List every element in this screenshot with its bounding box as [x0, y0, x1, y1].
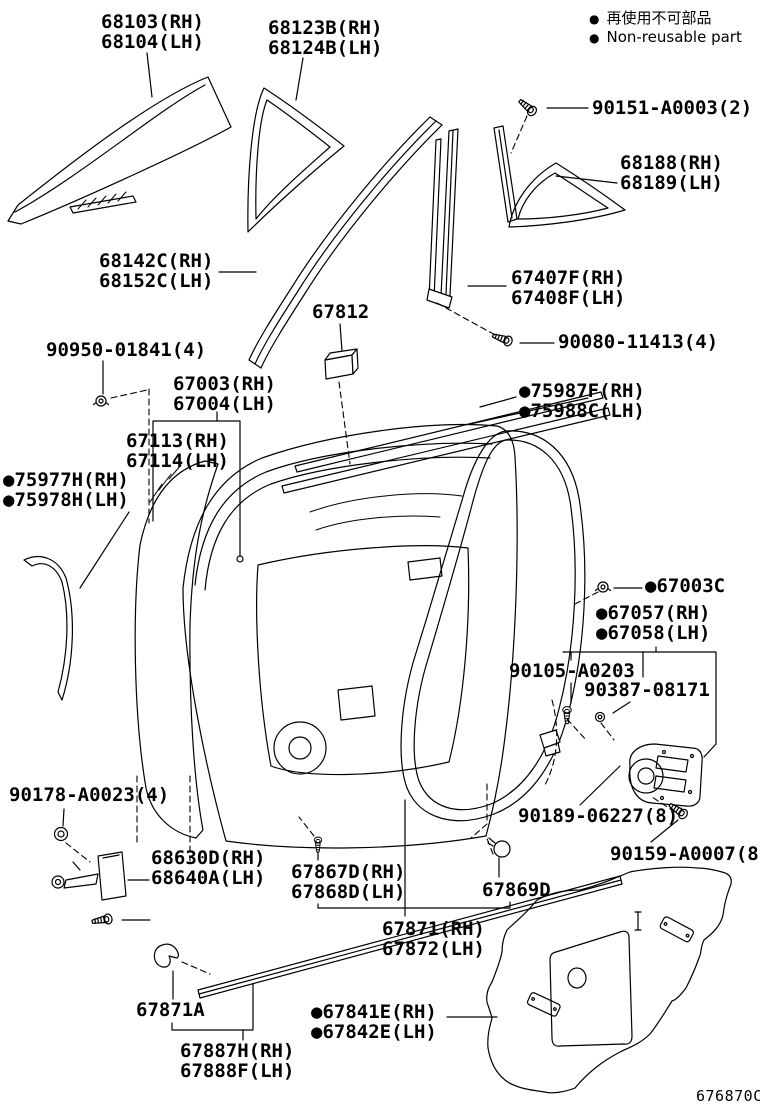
- part-label-68123B: 68123B(RH)68124B(LH): [268, 18, 382, 58]
- part-label-67867D: 67867D(RH)67868D(LH): [291, 862, 405, 902]
- legend-text-jp: 再使用不可部品: [606, 9, 711, 28]
- part-label-68188: 68188(RH)68189(LH): [620, 153, 723, 193]
- part-label-75987F: ●75987F(RH)●75988C(LH): [519, 381, 645, 421]
- part-label-67869D: 67869D: [482, 880, 551, 900]
- non-reusable-bullet-icon: ●: [589, 13, 599, 25]
- glass-run-drawing: [249, 117, 442, 368]
- part-label-90950: 90950-01841(4): [46, 340, 206, 360]
- part-label-67003: 67003(RH)67004(LH): [173, 374, 276, 414]
- part-label-75977H: ●75977H(RH)●75978H(LH): [3, 470, 129, 510]
- door-weatherstrip-drawing: [401, 431, 585, 821]
- figure-code: 676870C: [696, 1087, 760, 1105]
- part-label-90159: 90159-A0007(8): [610, 844, 760, 864]
- cushion-67812-drawing: [325, 349, 358, 379]
- part-label-90387: 90387-08171: [584, 680, 710, 700]
- bolt-90105-icon: [563, 707, 572, 724]
- protector-tape-front-drawing: [24, 557, 72, 700]
- retainer-clip-drawing: [154, 944, 178, 967]
- part-label-67871: 67871(RH)67872(LH): [382, 919, 485, 959]
- clip-67869d-icon: [488, 838, 510, 857]
- part-label-67841E: ●67841E(RH)●67842E(LH): [311, 1002, 437, 1042]
- clip-67867d-icon: [314, 837, 322, 852]
- part-label-67812: 67812: [312, 302, 369, 322]
- part-label-90178: 90178-A0023(4): [9, 785, 169, 805]
- door-panel-drawing: [183, 425, 517, 848]
- part-label-90189: 90189-06227(8): [518, 806, 678, 826]
- part-label-68142C: 68142C(RH)68152C(LH): [99, 251, 213, 291]
- part-label-67003C: ●67003C: [645, 576, 725, 596]
- part-label-90080: 90080-11413(4): [558, 332, 718, 352]
- legend-row-en: ● Non-reusable part: [589, 28, 742, 47]
- grommet-67003c-icon: [596, 582, 611, 592]
- legend-row-jp: ● 再使用不可部品: [589, 9, 742, 28]
- rear-door-frame-drawing: [427, 129, 458, 308]
- door-outer-panel-drawing: [135, 461, 218, 838]
- screw-90084-icon: [91, 913, 112, 926]
- nut-90178-icon: [55, 828, 68, 841]
- quarter-window-weatherstrip-drawing: [248, 88, 344, 232]
- division-bar-drawing: [494, 126, 517, 222]
- part-label-67871A: 67871A: [136, 1000, 205, 1020]
- door-check-drawing: [52, 852, 126, 900]
- collar-90387-icon: [596, 713, 605, 722]
- part-label-67887H: 67887H(RH)67888F(LH): [180, 1041, 294, 1081]
- screw-90080-icon: [491, 331, 513, 347]
- hinge-lower-drawing: [629, 744, 702, 806]
- part-label-67113: 67113(RH)67114(LH): [126, 431, 229, 471]
- part-label-68630D: 68630D(RH)68640A(LH): [151, 848, 265, 888]
- grommet-90950-icon: [94, 396, 109, 406]
- part-label-68103: 68103(RH)68104(LH): [101, 12, 204, 52]
- part-label-67407F: 67407F(RH)67408F(LH): [511, 268, 625, 308]
- part-label-90105: 90105-A0203: [509, 661, 635, 681]
- quarter-glass-weatherstrip-drawing: [509, 163, 625, 227]
- part-label-67057: ●67057(RH)●67058(LH): [596, 603, 710, 643]
- non-reusable-bullet-icon: ●: [589, 32, 599, 44]
- door-glass-drawing: [8, 77, 231, 224]
- legend-text-en: Non-reusable part: [606, 28, 741, 47]
- legend: ● 再使用不可部品 ● Non-reusable part: [589, 9, 742, 47]
- parts-diagram-page: ● 再使用不可部品 ● Non-reusable part 68103(RH)6…: [0, 0, 760, 1112]
- part-label-90151: 90151-A0003(2): [592, 98, 752, 118]
- screw-90151-icon: [517, 97, 539, 118]
- service-hole-cover-drawing: [487, 867, 731, 1093]
